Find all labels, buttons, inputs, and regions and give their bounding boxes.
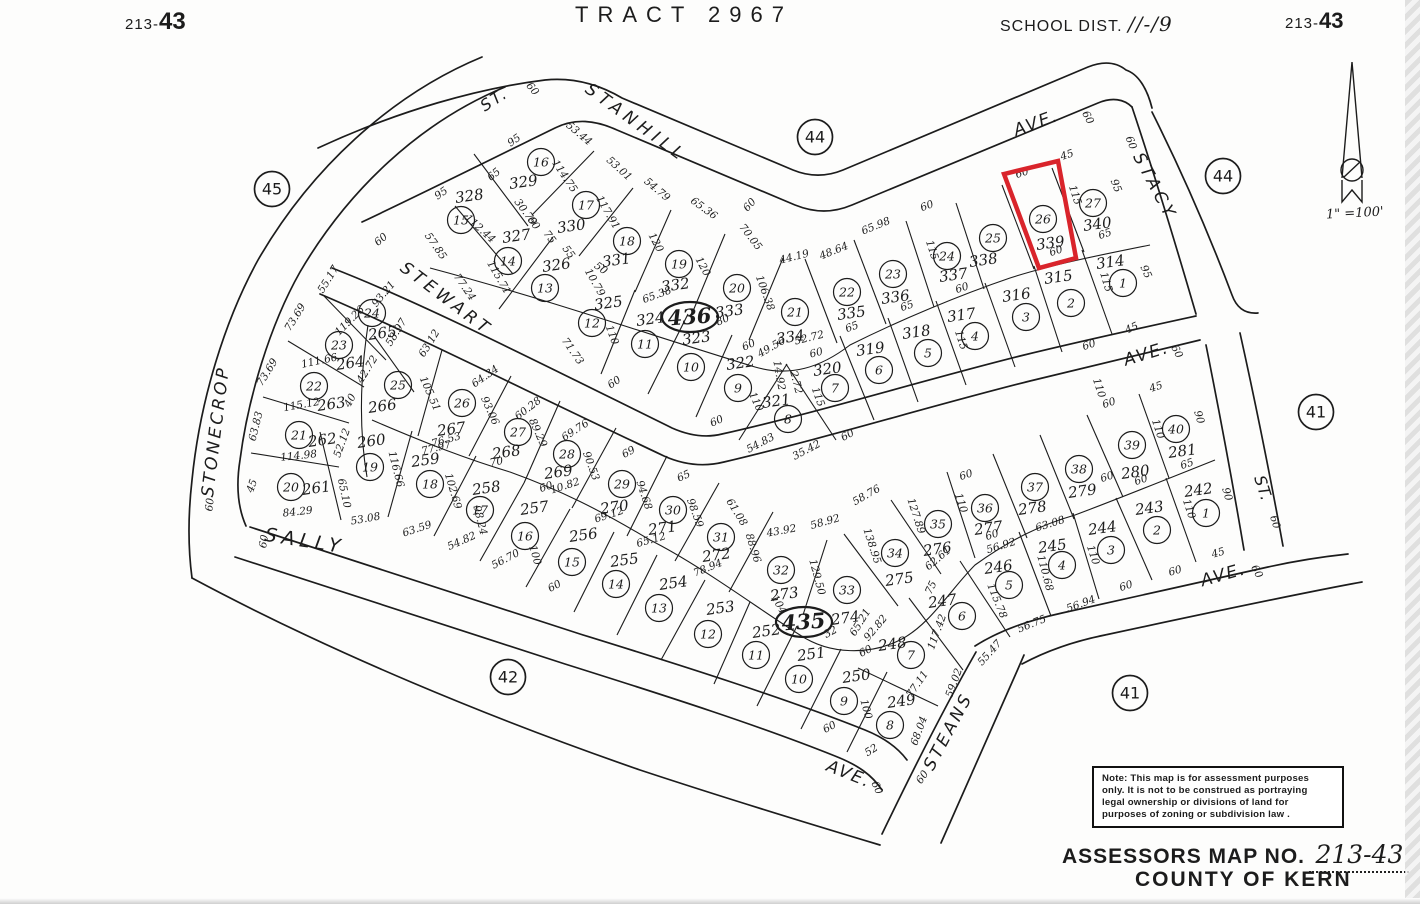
lot-number: 13 bbox=[651, 601, 667, 616]
dimension-label: 75 bbox=[541, 228, 559, 246]
dimension-label: 110 bbox=[1149, 418, 1167, 441]
lot-number: 20 bbox=[282, 480, 299, 495]
dimension-label: 53.44 bbox=[564, 119, 595, 148]
lot-number: 8 bbox=[784, 412, 792, 427]
lot-number: 24 bbox=[363, 306, 380, 321]
dimension-label: 60 bbox=[1248, 563, 1265, 581]
dimension-label: 60 bbox=[1099, 469, 1116, 485]
street-name: STACY bbox=[1128, 150, 1180, 224]
dimension-label: 106.38 bbox=[753, 274, 777, 313]
parcel-number: 326 bbox=[541, 254, 572, 276]
lot-number: 2 bbox=[1152, 523, 1161, 538]
dimension-label: 60 bbox=[1118, 578, 1135, 594]
street-name: AVE. bbox=[1120, 338, 1171, 371]
parcel-number: 254 bbox=[657, 572, 689, 594]
assessor-map-page: 213-43 TRACT 2967 SCHOOL DIST. //-/9 213… bbox=[0, 0, 1420, 904]
dimension-label: 84.29 bbox=[282, 504, 313, 519]
dimension-label: 45 bbox=[244, 477, 260, 495]
dimension-label: 60 bbox=[914, 768, 932, 786]
lot-number: 9 bbox=[734, 381, 742, 396]
parcel-number: 273 bbox=[768, 583, 800, 605]
dimension-label: 120 bbox=[646, 231, 666, 255]
dimension-label: 90 bbox=[1191, 409, 1206, 425]
dimension-label: 63.12 bbox=[416, 327, 442, 359]
dimension-label: 60 bbox=[1081, 337, 1098, 353]
parcel-number: 338 bbox=[968, 249, 999, 271]
lot-number: 2 bbox=[1066, 296, 1075, 311]
dimension-label: 60 bbox=[740, 337, 757, 354]
dimension-label: 60 bbox=[857, 643, 875, 660]
parcel-number: 278 bbox=[1016, 497, 1048, 519]
assessors-map-line: ASSESSORS MAP NO. 213-43 bbox=[1062, 840, 1409, 869]
street-name: STEWART bbox=[396, 258, 496, 340]
lot-number: 4 bbox=[1057, 558, 1066, 573]
lot-number: 15 bbox=[564, 555, 580, 570]
dimension-label: 115 bbox=[1066, 184, 1084, 207]
lot-number: 19 bbox=[362, 460, 378, 475]
parcel-number: 249 bbox=[885, 690, 917, 712]
parcel-number: 327 bbox=[501, 225, 532, 247]
lot-number: 1 bbox=[1202, 506, 1210, 521]
parcel-number: 251 bbox=[795, 643, 827, 665]
street-edge-path bbox=[1206, 345, 1244, 550]
lot-number: 30 bbox=[665, 503, 681, 518]
dimension-label: 65.98 bbox=[860, 215, 893, 238]
lot-number: 12 bbox=[700, 627, 716, 642]
lot-number: 21 bbox=[786, 305, 803, 320]
dimension-label: 100 bbox=[526, 544, 543, 567]
parcel-number: 323 bbox=[681, 327, 712, 349]
dimension-label: 60 bbox=[257, 534, 271, 550]
parcel-number: 332 bbox=[660, 274, 691, 296]
lot-number: 23 bbox=[330, 338, 347, 353]
scan-edge-artifact bbox=[1405, 0, 1420, 904]
block-number: 435 bbox=[781, 608, 826, 636]
street-edge-path bbox=[975, 554, 1348, 646]
lot-number: 16 bbox=[517, 529, 533, 544]
parcel-number: 247 bbox=[926, 590, 958, 612]
block-number: 436 bbox=[667, 302, 713, 330]
dimension-label: 60 bbox=[1123, 134, 1139, 151]
dimension-label: 88.96 bbox=[743, 532, 763, 565]
dimension-label: 90 bbox=[1219, 486, 1234, 502]
dimension-label: 94.68 bbox=[634, 479, 655, 512]
lot-number: 10 bbox=[791, 672, 807, 687]
dimension-label: 43.92 bbox=[765, 522, 798, 539]
dimension-label: 70.05 bbox=[736, 222, 764, 253]
lot-number: 22 bbox=[838, 285, 855, 300]
dimension-label: 45 bbox=[1122, 320, 1140, 337]
lot-number: 37 bbox=[1027, 480, 1043, 495]
dimension-label: 53.01 bbox=[604, 154, 634, 183]
lot-number: 14 bbox=[608, 577, 624, 592]
parcel-number: 325 bbox=[593, 292, 624, 314]
parcel-number: 271 bbox=[646, 517, 678, 539]
dimension-label: 60 bbox=[1101, 395, 1118, 411]
lot-number: 5 bbox=[1005, 578, 1013, 593]
lot-number: 14 bbox=[500, 254, 516, 269]
dimension-label: 56.70 bbox=[490, 547, 522, 572]
lot-number: 18 bbox=[619, 234, 635, 249]
dimension-label: 56.94 bbox=[1065, 593, 1097, 615]
parcel-number: 262 bbox=[306, 429, 338, 451]
lot-number: 9 bbox=[840, 694, 848, 709]
note-line: only. It is not to be construed as portr… bbox=[1102, 785, 1334, 797]
parcel-number: 335 bbox=[836, 302, 867, 324]
lot-number: 26 bbox=[453, 396, 470, 411]
dimension-label: 102.69 bbox=[442, 472, 464, 511]
note-line: legal ownership or divisions of land for bbox=[1102, 797, 1334, 809]
lot-number: 34 bbox=[887, 546, 903, 561]
section-number: 41 bbox=[1306, 403, 1326, 422]
parcel-number: 255 bbox=[608, 549, 640, 571]
lot-number: 6 bbox=[875, 363, 883, 378]
dimension-label: 110.68 bbox=[1034, 554, 1055, 593]
dimension-label: 116.66 bbox=[386, 450, 407, 489]
dimension-label: 69.76 bbox=[559, 417, 591, 444]
parcel-number: 330 bbox=[556, 215, 587, 237]
dimension-label: 56.75 bbox=[1016, 613, 1049, 636]
lot-number: 12 bbox=[584, 316, 600, 331]
parcel-number: 328 bbox=[454, 185, 485, 207]
dimension-label: 48.64 bbox=[817, 240, 850, 263]
parcel-number: 250 bbox=[840, 665, 872, 687]
parcel-number: 272 bbox=[700, 544, 732, 566]
dimension-label: 119.26 bbox=[333, 303, 368, 338]
dimension-label: 110 bbox=[1090, 377, 1108, 400]
lot-number: 17 bbox=[472, 503, 488, 518]
lot-number: 18 bbox=[422, 477, 438, 492]
lot-number: 3 bbox=[1022, 310, 1030, 325]
assessors-label: ASSESSORS MAP NO. bbox=[1062, 845, 1305, 868]
lot-number: 11 bbox=[748, 648, 764, 663]
dimension-label: 95 bbox=[1138, 263, 1155, 280]
lot-number: 5 bbox=[924, 346, 932, 361]
dimension-label: 44.19 bbox=[777, 248, 810, 267]
lot-number: 13 bbox=[537, 281, 553, 296]
dimension-label: 60 bbox=[372, 231, 390, 249]
parcel-number: 331 bbox=[601, 249, 632, 271]
lot-number: 15 bbox=[453, 213, 469, 228]
disclaimer-note: Note: This map is for assessment purpose… bbox=[1092, 766, 1344, 828]
dimension-label: 53.08 bbox=[350, 510, 382, 527]
parcel-number: 279 bbox=[1066, 480, 1098, 502]
street-edge-path bbox=[1022, 582, 1362, 664]
dimension-label: 69 bbox=[620, 444, 638, 461]
dimension-label: 93.06 bbox=[478, 395, 501, 428]
lot-number: 38 bbox=[1071, 462, 1087, 477]
lot-number: 32 bbox=[773, 563, 789, 578]
lot-number: 23 bbox=[884, 267, 901, 282]
dimension-label: 61.08 bbox=[723, 496, 749, 528]
lot-number: 33 bbox=[839, 583, 855, 598]
lot-number: 31 bbox=[713, 530, 729, 545]
dimension-label: 60 bbox=[708, 413, 725, 430]
section-number: 42 bbox=[498, 668, 518, 687]
parcel-number: 266 bbox=[366, 395, 398, 417]
parcel-number: 329 bbox=[508, 171, 539, 193]
dimension-label: 45 bbox=[1147, 379, 1165, 395]
section-number: 44 bbox=[1213, 167, 1233, 186]
dimension-label: 60 bbox=[605, 374, 623, 392]
parcel-number: 246 bbox=[982, 556, 1014, 578]
dimension-label: 90.53 bbox=[580, 450, 602, 483]
street-edge-path bbox=[189, 57, 482, 578]
parcel-number: 245 bbox=[1036, 535, 1068, 557]
lot-number: 7 bbox=[907, 648, 915, 663]
lot-number: 11 bbox=[637, 337, 653, 352]
section-number: 45 bbox=[262, 180, 282, 199]
lot-number: 25 bbox=[984, 231, 1001, 246]
lot-number: 17 bbox=[578, 198, 594, 213]
dimension-label: 110 bbox=[952, 492, 970, 515]
parcel-number: 260 bbox=[355, 430, 387, 452]
parcel-number: 270 bbox=[598, 496, 630, 518]
parcel-number: 316 bbox=[1001, 284, 1032, 306]
dimension-label: 110 bbox=[1180, 498, 1198, 521]
parcel-number: 257 bbox=[518, 497, 550, 519]
parcel-number: 281 bbox=[1166, 440, 1198, 462]
dimension-label: 63.59 bbox=[401, 519, 434, 540]
dimension-label: 65 bbox=[675, 468, 692, 485]
dimension-label: 60 bbox=[203, 497, 216, 512]
lot-number: 7 bbox=[831, 381, 839, 396]
note-line: Note: This map is for assessment purpose… bbox=[1102, 773, 1334, 785]
section-number: 44 bbox=[805, 128, 825, 147]
lot-number: 35 bbox=[930, 517, 946, 532]
dimension-label: 60 bbox=[741, 196, 759, 214]
north-arrow-icon bbox=[1341, 62, 1363, 202]
street-name: AVE. bbox=[1198, 559, 1249, 591]
lot-number: 10 bbox=[683, 360, 699, 375]
dimension-label: 95 bbox=[505, 132, 523, 150]
dimension-label: 105.51 bbox=[417, 375, 443, 413]
parcel-number: 321 bbox=[761, 390, 792, 412]
dimension-label: 54.83 bbox=[745, 431, 777, 456]
county-label: COUNTY OF KERN bbox=[1135, 868, 1352, 892]
lot-number: 1 bbox=[1119, 276, 1127, 291]
dimension-label: 63.08 bbox=[1034, 514, 1067, 534]
lot-number: 16 bbox=[533, 155, 549, 170]
lot-number: 39 bbox=[1124, 438, 1140, 453]
dimension-label: 60 bbox=[1079, 109, 1096, 127]
lot-number: 27 bbox=[1084, 196, 1101, 211]
lot-number: 36 bbox=[977, 501, 993, 516]
lot-number: 27 bbox=[509, 425, 526, 440]
lot-number: 24 bbox=[938, 249, 955, 264]
dimension-label: 57.85 bbox=[422, 231, 449, 263]
section-number: 41 bbox=[1120, 684, 1140, 703]
dimension-label: 60 bbox=[1168, 343, 1185, 361]
lot-boundary-line bbox=[906, 221, 934, 307]
parcel-number: 320 bbox=[812, 358, 843, 380]
dimension-label: 54.82 bbox=[446, 530, 479, 553]
dimension-label: 127.89 bbox=[904, 497, 927, 536]
parcel-number: 275 bbox=[883, 568, 915, 590]
parcel-number: 268 bbox=[490, 441, 522, 463]
parcel-number: 267 bbox=[435, 418, 467, 440]
dimension-label: 54.79 bbox=[642, 175, 673, 204]
dimension-label: 60 bbox=[546, 578, 564, 595]
dimension-label: 60 bbox=[839, 427, 857, 444]
parcel-number: 253 bbox=[704, 597, 736, 619]
parcel-number: 258 bbox=[470, 477, 502, 499]
lot-number: 28 bbox=[558, 447, 575, 462]
lot-number: 3 bbox=[1107, 543, 1115, 558]
dimension-label: 45 bbox=[1209, 545, 1226, 561]
lot-number: 6 bbox=[958, 609, 966, 624]
lot-number: 8 bbox=[886, 718, 894, 733]
dimension-label: 73.69 bbox=[282, 301, 308, 333]
dimension-label: 115 bbox=[952, 329, 970, 352]
dimension-label: 60 bbox=[919, 198, 936, 214]
parcel-number: 256 bbox=[567, 524, 599, 546]
dimension-label: 45 bbox=[1058, 147, 1076, 163]
lot-number: 21 bbox=[290, 428, 307, 443]
dimension-label: 120 bbox=[693, 255, 713, 279]
lot-number: 26 bbox=[1034, 212, 1051, 227]
dimension-label: 63.83 bbox=[247, 410, 266, 442]
dimension-label: 65 bbox=[485, 166, 503, 184]
dimension-label: 58.76 bbox=[850, 483, 882, 509]
street-name: SALLY bbox=[263, 524, 346, 558]
dimension-label: 58.92 bbox=[809, 512, 842, 532]
lot-number: 25 bbox=[389, 378, 406, 393]
lot-number: 22 bbox=[305, 379, 322, 394]
parcel-number: 261 bbox=[300, 477, 332, 499]
lot-boundary-line bbox=[1002, 185, 1034, 269]
scale-label: 1" =100' bbox=[1326, 205, 1384, 223]
dimension-label: 55.17 bbox=[315, 263, 341, 295]
street-name: STONECROP bbox=[198, 364, 234, 498]
dimension-label: 60 bbox=[821, 719, 839, 736]
dimension-label: 65.36 bbox=[688, 195, 720, 223]
parcel-number: 277 bbox=[972, 517, 1004, 539]
dimension-label: 60 bbox=[1167, 563, 1183, 578]
lot-number: 20 bbox=[728, 281, 745, 296]
parcel-number: 315 bbox=[1043, 266, 1074, 288]
parcel-number: 248 bbox=[876, 633, 908, 655]
dimension-label: 60 bbox=[958, 467, 975, 483]
parcel-number: 243 bbox=[1133, 497, 1165, 519]
dimension-label: 95 bbox=[1108, 177, 1124, 194]
parcel-number: 322 bbox=[725, 352, 756, 374]
lot-number: 4 bbox=[970, 329, 979, 344]
dimension-label: 52 bbox=[863, 742, 881, 759]
scan-bottom-artifact bbox=[0, 898, 1420, 904]
lot-number: 40 bbox=[1167, 422, 1184, 437]
dimension-label: 60 bbox=[808, 346, 824, 361]
parcel-number: 259 bbox=[409, 449, 441, 471]
street-name: AVE. bbox=[1010, 106, 1062, 141]
street-name: ST. bbox=[1250, 473, 1276, 504]
street-name: ST. bbox=[477, 83, 512, 115]
dimension-label: 71.73 bbox=[559, 336, 586, 368]
lot-number: 29 bbox=[613, 477, 630, 492]
dimension-label: 2.72 bbox=[787, 369, 805, 396]
parcel-number: 244 bbox=[1086, 517, 1118, 539]
dimension-label: 129.50 bbox=[806, 558, 827, 597]
lot-number: 19 bbox=[671, 257, 687, 272]
note-line: purposes of zoning or subdivision law . bbox=[1102, 809, 1334, 821]
parcel-number: 263 bbox=[315, 393, 347, 415]
parcel-number: 242 bbox=[1182, 479, 1214, 501]
